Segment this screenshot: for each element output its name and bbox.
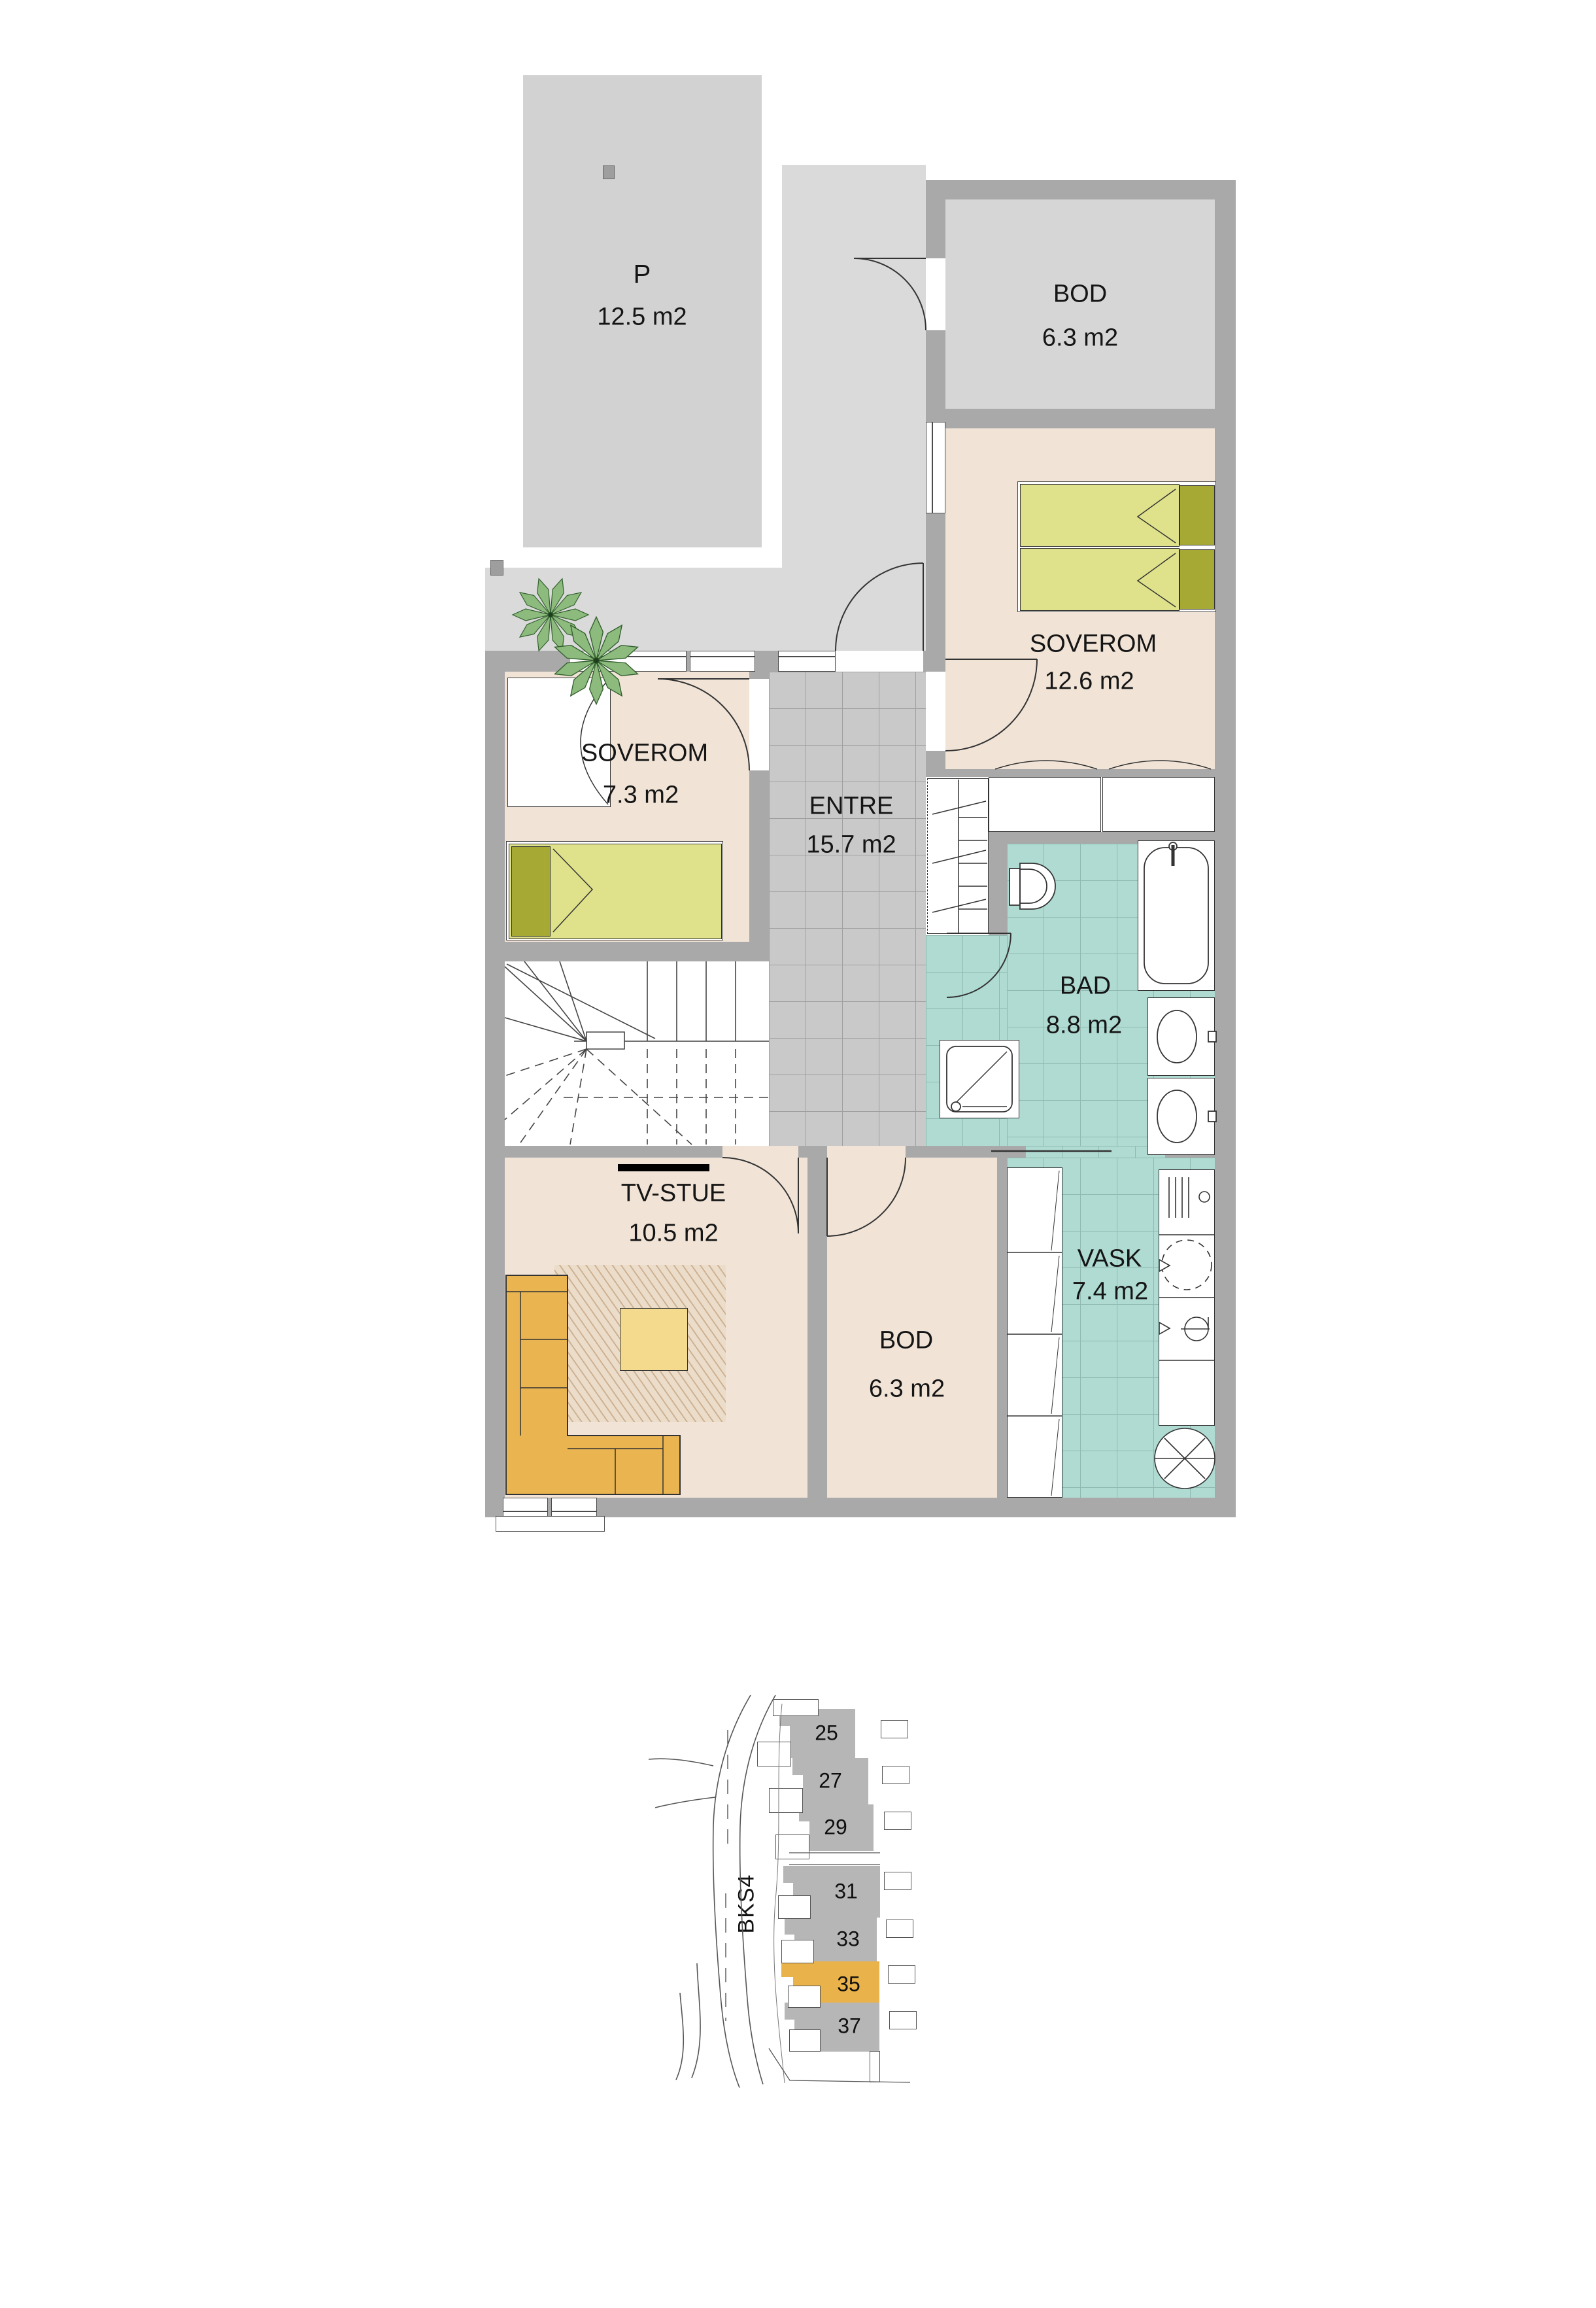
room-name: TV-STUE bbox=[621, 1180, 726, 1208]
room-area: 7.3 m2 bbox=[603, 782, 679, 810]
site-lot bbox=[773, 1699, 819, 1716]
site-terrace bbox=[884, 1872, 911, 1890]
site-lot bbox=[870, 2051, 880, 2082]
wall bbox=[485, 1498, 503, 1517]
room-area: 12.6 m2 bbox=[1044, 668, 1134, 696]
pillow-icon bbox=[511, 846, 551, 937]
sink-vanity-icon bbox=[1147, 1078, 1215, 1155]
bad-vask-passage bbox=[1025, 1146, 1165, 1158]
wall bbox=[1215, 180, 1236, 1517]
wall bbox=[997, 1158, 1007, 1498]
site-terrace bbox=[888, 1965, 915, 1984]
site-unit-number: 33 bbox=[836, 1927, 860, 1952]
room-name: SOVEROM bbox=[1030, 630, 1157, 659]
room-name: BOD bbox=[1053, 281, 1107, 309]
site-road-label: BKS4 bbox=[734, 1874, 760, 1934]
wall bbox=[807, 1158, 827, 1498]
site-unit-number: 37 bbox=[838, 2014, 861, 2039]
wall bbox=[945, 409, 1215, 428]
window bbox=[551, 1498, 597, 1517]
site-unit-block bbox=[792, 1758, 804, 1775]
bathtub-icon bbox=[1138, 840, 1215, 991]
wall bbox=[597, 1498, 1236, 1517]
site-unit-block-highlighted bbox=[781, 1961, 794, 1977]
room-name: BAD bbox=[1060, 973, 1111, 1001]
site-garage bbox=[778, 1895, 811, 1919]
room-area: 7.4 m2 bbox=[1072, 1278, 1148, 1306]
wall bbox=[798, 1146, 827, 1158]
pillow-icon bbox=[1180, 549, 1215, 610]
floor-plan-canvas: P 12.5 m2 BOD 6.3 m2 SOVEROM 12.6 m2 SOV… bbox=[0, 0, 1596, 2308]
window bbox=[569, 651, 687, 672]
room-area: 10.5 m2 bbox=[628, 1220, 718, 1248]
pillow-icon bbox=[1180, 485, 1215, 545]
site-garage bbox=[788, 1986, 821, 2008]
site-garage bbox=[781, 1940, 814, 1963]
wall bbox=[926, 330, 945, 422]
post-icon bbox=[490, 560, 503, 576]
entrance-door-opening bbox=[836, 651, 923, 672]
room-name: P bbox=[634, 260, 651, 290]
site-terrace bbox=[881, 1720, 908, 1738]
wall bbox=[906, 1146, 1025, 1158]
site-terrace bbox=[889, 2011, 917, 2029]
laundry-cabinet-icon bbox=[1007, 1167, 1062, 1498]
site-terrace bbox=[884, 1812, 911, 1830]
window bbox=[503, 1498, 548, 1517]
sink-vanity-icon bbox=[1147, 997, 1215, 1076]
appliance-column-icon bbox=[1159, 1169, 1215, 1426]
room-area: 8.8 m2 bbox=[1046, 1012, 1122, 1040]
bod-lower-door-opening bbox=[827, 1146, 906, 1158]
site-unit-block bbox=[783, 1866, 794, 1883]
window-sill bbox=[496, 1516, 605, 1532]
shower-icon bbox=[940, 1040, 1019, 1118]
site-terrace bbox=[886, 1920, 913, 1938]
wall bbox=[926, 180, 1236, 199]
site-unit-number: 25 bbox=[815, 1721, 838, 1746]
room-name: ENTRE bbox=[809, 793, 894, 821]
wall bbox=[926, 180, 945, 258]
site-unit-number: 29 bbox=[824, 1816, 847, 1840]
coffee-table-icon bbox=[620, 1308, 688, 1371]
wall bbox=[926, 513, 945, 659]
site-unit-number: 35 bbox=[837, 1972, 860, 1997]
wardrobe-icon bbox=[989, 777, 1101, 832]
room-area: 15.7 m2 bbox=[806, 831, 896, 859]
window bbox=[926, 422, 945, 513]
site-terrace bbox=[882, 1766, 909, 1784]
wall bbox=[749, 770, 769, 942]
room-name: SOVEROM bbox=[581, 740, 708, 768]
site-garage bbox=[775, 1834, 809, 1859]
wardrobe-icon bbox=[1102, 777, 1215, 832]
wall bbox=[485, 651, 505, 1517]
wall bbox=[485, 942, 769, 961]
site-garage bbox=[757, 1742, 791, 1766]
wall bbox=[485, 1146, 722, 1158]
tv-icon bbox=[618, 1164, 709, 1171]
walkway-horizontal bbox=[485, 568, 926, 653]
site-unit-block bbox=[785, 1918, 795, 1935]
site-unit-number: 27 bbox=[819, 1769, 842, 1793]
site-garage bbox=[789, 2029, 821, 2052]
wall bbox=[926, 751, 945, 777]
window bbox=[778, 651, 836, 672]
tv-stue-door-opening bbox=[722, 1146, 798, 1158]
room-floor-entre bbox=[769, 672, 926, 1146]
post-icon bbox=[603, 165, 615, 179]
room-name: BOD bbox=[879, 1327, 933, 1355]
mattress-icon bbox=[1020, 484, 1180, 547]
site-garage bbox=[769, 1788, 803, 1813]
room-name: VASK bbox=[1078, 1245, 1142, 1273]
wall bbox=[923, 651, 945, 672]
mattress-icon bbox=[1020, 548, 1180, 611]
site-unit-number: 31 bbox=[834, 1880, 858, 1904]
room-area: 6.3 m2 bbox=[869, 1375, 945, 1404]
stairwell-floor bbox=[505, 961, 769, 1146]
window bbox=[690, 651, 755, 672]
wall bbox=[945, 769, 1215, 777]
entre-closet-icon bbox=[927, 778, 989, 934]
room-area: 12.5 m2 bbox=[597, 303, 687, 332]
room-area: 6.3 m2 bbox=[1042, 324, 1118, 353]
